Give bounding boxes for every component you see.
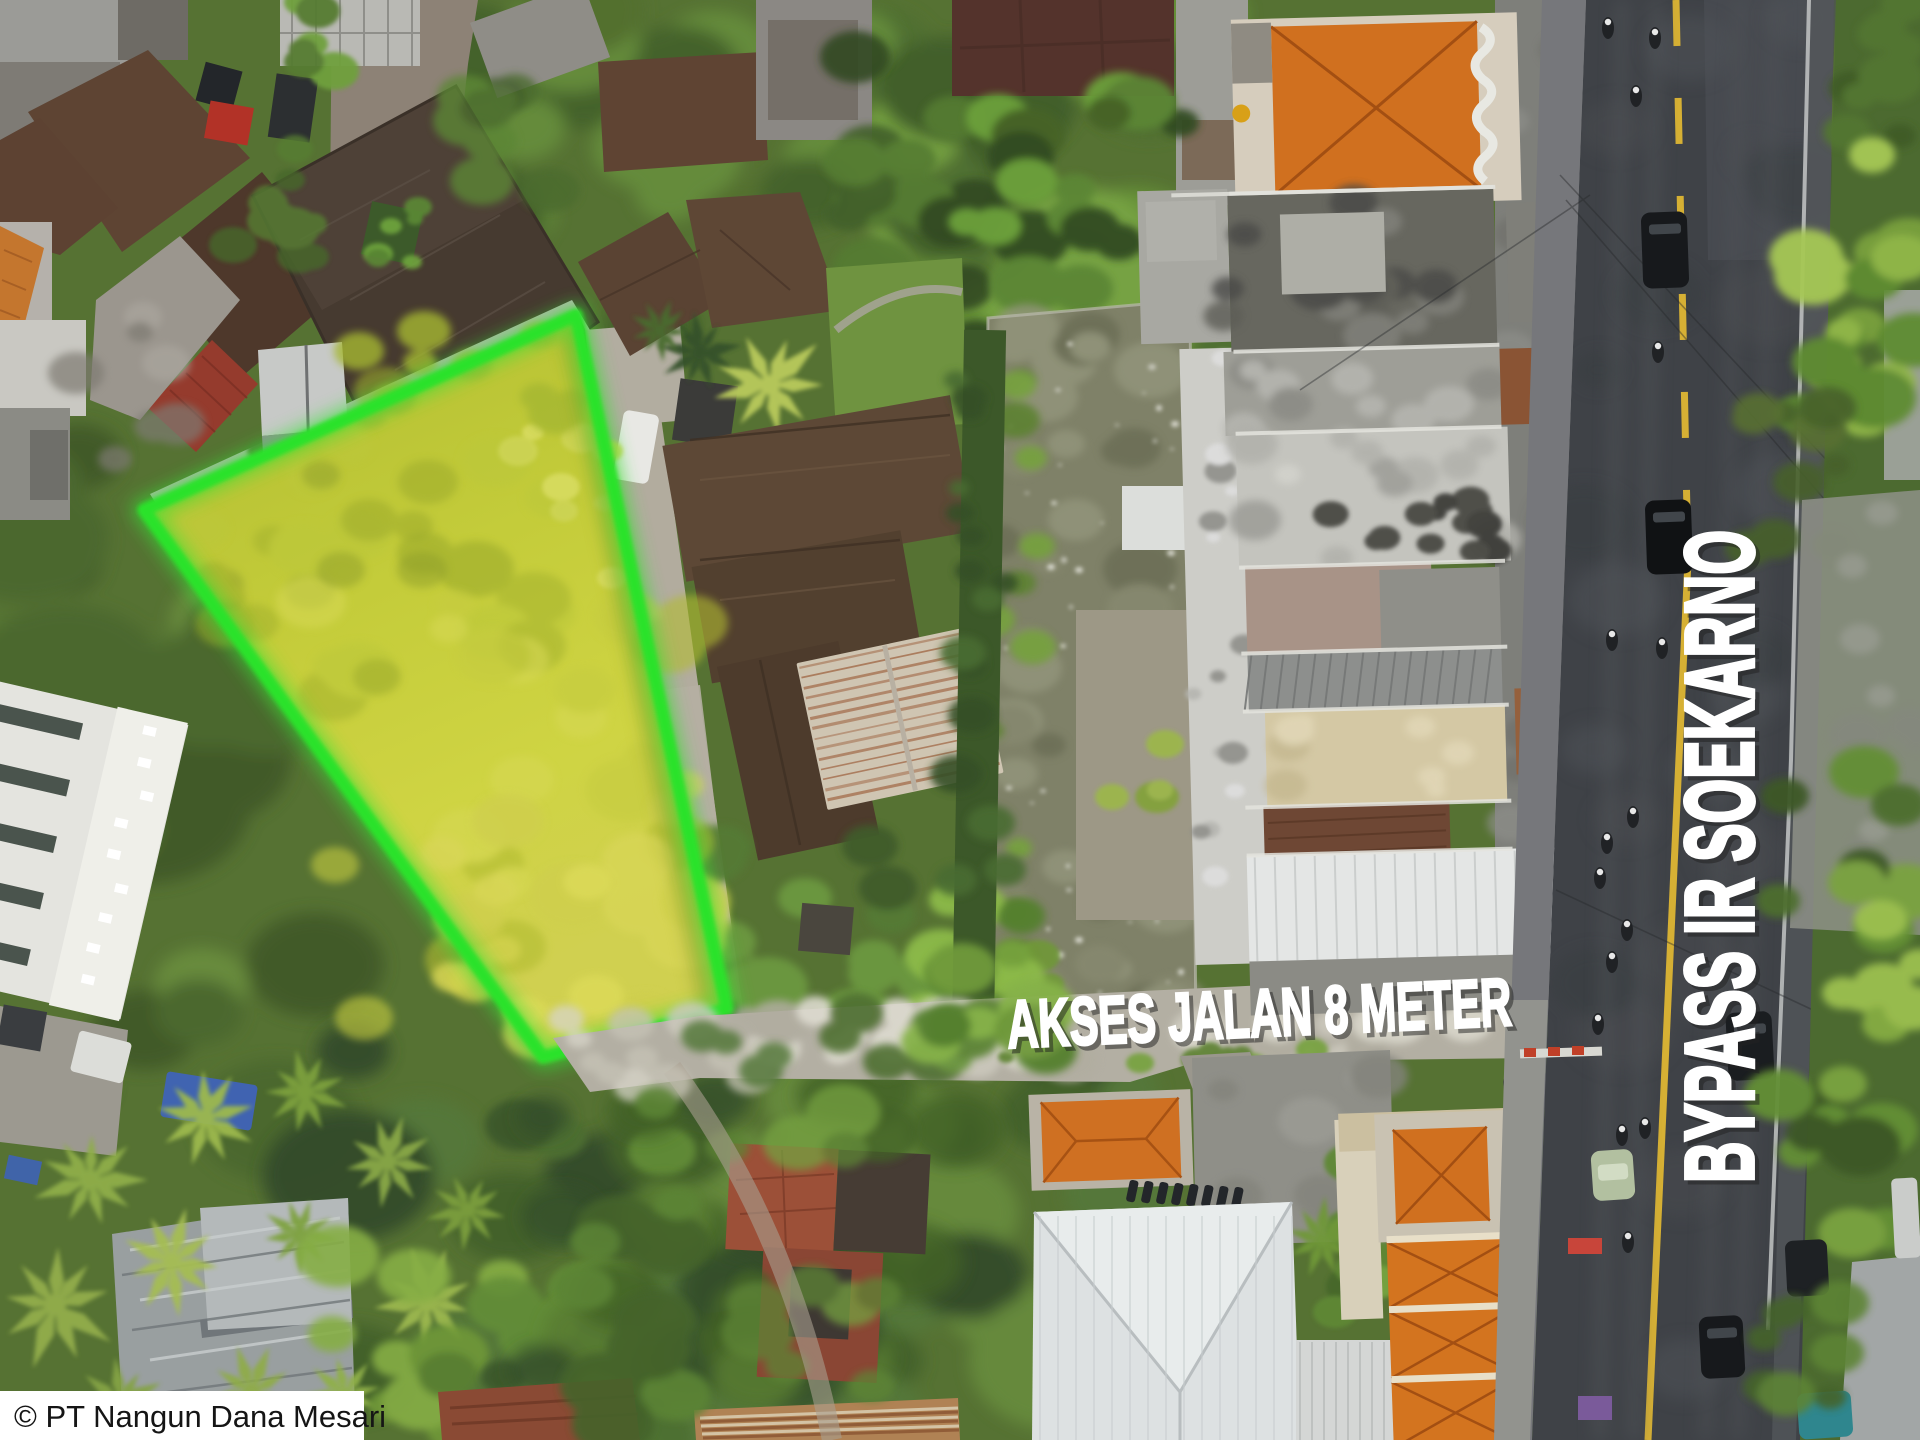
svg-text:© PT Nangun Dana Mesari: © PT Nangun Dana Mesari bbox=[14, 1399, 386, 1434]
svg-text:BYPASS IR SOEKARNO: BYPASS IR SOEKARNO bbox=[1665, 530, 1774, 1183]
